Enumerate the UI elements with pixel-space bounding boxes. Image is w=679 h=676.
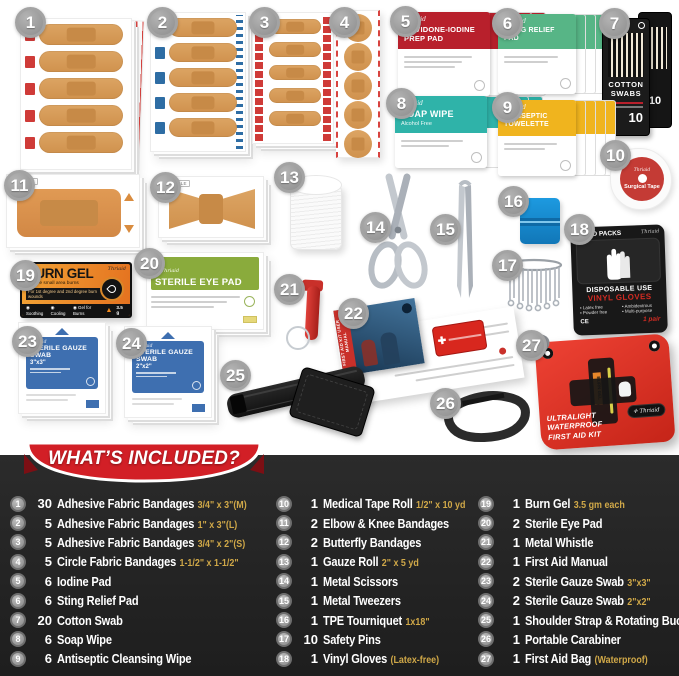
window-horizontal bbox=[569, 376, 637, 407]
item-text: Metal Tweezers bbox=[323, 593, 401, 608]
badge-19: 19 bbox=[10, 260, 41, 291]
item-qty: 6 bbox=[31, 593, 52, 608]
item-name: Iodine Pad bbox=[57, 574, 111, 589]
eye-pad-title: STERILE EYE PAD bbox=[155, 277, 255, 288]
butterfly-pad bbox=[199, 194, 223, 224]
gloves-bullet: ▪ Powder free bbox=[580, 309, 618, 315]
included-item-21: 211Metal Whistle bbox=[478, 533, 679, 552]
item-qty: 6 bbox=[31, 574, 52, 589]
item-number-badge: 19 bbox=[478, 496, 494, 512]
item-name: First Aid Manual bbox=[525, 554, 608, 569]
item-number-badge: 2 bbox=[10, 515, 26, 531]
item-number-badge: 16 bbox=[276, 612, 292, 628]
item-qty: 5 bbox=[31, 535, 52, 550]
item-qty: 1 bbox=[297, 496, 318, 511]
infographic: Thriaid POVIDONE-IODINE PREP PAD Thriaid… bbox=[0, 0, 679, 676]
item-name: Cotton Swab bbox=[57, 613, 123, 628]
item-spec: (Waterproof) bbox=[595, 654, 648, 666]
badge-15: 15 bbox=[430, 214, 461, 245]
item-number-badge: 4 bbox=[10, 554, 26, 570]
badge-13: 13 bbox=[274, 162, 305, 193]
badge-4: 4 bbox=[329, 7, 360, 38]
burn-bullet: ◉ Gel for Burns bbox=[73, 305, 101, 316]
included-item-11: 112Elbow & Knee Bandages bbox=[276, 513, 491, 532]
item-name: Antiseptic Cleansing Wipe bbox=[57, 651, 191, 666]
grommet-icon bbox=[649, 340, 661, 352]
item-number-badge: 10 bbox=[276, 496, 292, 512]
item-text: Metal Scissors bbox=[323, 574, 398, 589]
whats-included-title: WHAT’S INCLUDED? bbox=[18, 448, 270, 470]
item-qty: 30 bbox=[31, 496, 52, 511]
item-number-badge: 23 bbox=[478, 573, 494, 589]
item-qty: 1 bbox=[297, 613, 318, 628]
item-number-badge: 3 bbox=[10, 534, 26, 550]
item-name: Adhesive Fabric Bandages bbox=[57, 516, 194, 531]
item-text: Adhesive Fabric Bandages1" x 3"(L) bbox=[57, 516, 237, 531]
included-item-16: 161TPE Tourniquet1x18" bbox=[276, 610, 491, 629]
red-dot bbox=[499, 347, 507, 355]
item-name: Burn Gel bbox=[525, 496, 570, 511]
item-name: Butterfly Bandages bbox=[323, 535, 421, 550]
included-item-1: 130Adhesive Fabric Bandages3/4" x 3"(M) bbox=[10, 494, 280, 513]
gloves-icon bbox=[589, 241, 648, 281]
included-column-2: 101Medical Tape Roll1/2" x 10 yd112Elbow… bbox=[276, 494, 491, 669]
item-qty: 2 bbox=[297, 516, 318, 531]
item-27-first-aid-bag: BURN GEL ULTRALIGHT WATERPROOF FIRST AID… bbox=[536, 334, 678, 454]
item-name: Circle Fabric Bandages bbox=[57, 554, 176, 569]
included-item-27: 271First Aid Bag(Waterproof) bbox=[478, 649, 679, 668]
item-qty: 6 bbox=[31, 651, 52, 666]
badge-9: 9 bbox=[492, 92, 523, 123]
included-item-23: 232Sterile Gauze Swab3"x3" bbox=[478, 572, 679, 591]
badge-14: 14 bbox=[360, 212, 391, 243]
included-item-9: 96Antiseptic Cleansing Wipe bbox=[10, 649, 280, 668]
badge-8: 8 bbox=[386, 88, 417, 119]
badge-2: 2 bbox=[147, 7, 178, 38]
item-text: Antiseptic Cleansing Wipe bbox=[57, 651, 191, 666]
blue-chip bbox=[86, 400, 99, 408]
item-name: Metal Scissors bbox=[323, 574, 398, 589]
item-text: Circle Fabric Bandages1-1/2" x 1-1/2" bbox=[57, 554, 239, 569]
included-item-6: 66Sting Relief Pad bbox=[10, 591, 280, 610]
item-spec: 2" x 5 yd bbox=[382, 557, 419, 569]
blue-edge bbox=[236, 15, 243, 149]
item-spec: (Latex-free) bbox=[390, 654, 439, 666]
included-item-8: 86Soap Wipe bbox=[10, 630, 280, 649]
burn-bullet: ◉ Cooling bbox=[51, 305, 69, 316]
tape-title: Surgical Tape bbox=[624, 184, 660, 190]
item-spec: 3/4" x 2"(S) bbox=[198, 538, 246, 550]
item-text: Sterile Gauze Swab2"x2" bbox=[525, 593, 651, 608]
item-name: Adhesive Fabric Bandages bbox=[57, 496, 194, 511]
item-number-badge: 17 bbox=[276, 631, 292, 647]
brand-script: Thriaid bbox=[641, 229, 660, 236]
seal-stamp-icon bbox=[474, 80, 485, 91]
glove-in-window bbox=[618, 381, 631, 397]
badge-17: 17 bbox=[492, 250, 523, 281]
item-number-badge: 1 bbox=[10, 496, 26, 512]
item-number-badge: 13 bbox=[276, 554, 292, 570]
item-name: Metal Tweezers bbox=[323, 593, 401, 608]
item-text: Shoulder Strap & Rotating Buckle bbox=[525, 613, 679, 628]
item-name: Vinyl Gloves bbox=[323, 651, 387, 666]
item-text: Elbow & Knee Bandages bbox=[323, 516, 449, 531]
item-qty: 2 bbox=[499, 593, 520, 608]
badge-25: 25 bbox=[220, 360, 251, 391]
item-text: Gauze Roll2" x 5 yd bbox=[323, 554, 419, 569]
badge-22: 22 bbox=[338, 298, 369, 329]
item-number-badge: 15 bbox=[276, 593, 292, 609]
bag-body: BURN GEL ULTRALIGHT WATERPROOF FIRST AID… bbox=[534, 333, 675, 450]
hiker-figure bbox=[380, 331, 401, 365]
item-text: Portable Carabiner bbox=[525, 632, 621, 647]
item-spec: 1-1/2" x 1-1/2" bbox=[179, 557, 238, 569]
seal-icon bbox=[638, 22, 645, 29]
item-qty: 5 bbox=[31, 554, 52, 569]
badge-3: 3 bbox=[249, 7, 280, 38]
ce-mark: CE bbox=[580, 319, 589, 325]
bag-brand-patch: ✛ Thriaid bbox=[627, 403, 666, 419]
droplet-badge-icon bbox=[100, 277, 124, 301]
item-number-badge: 26 bbox=[478, 631, 494, 647]
included-item-18: 181Vinyl Gloves(Latex-free) bbox=[276, 649, 491, 668]
gauze-size: 2"x2" bbox=[136, 364, 200, 370]
badge-1: 1 bbox=[15, 7, 46, 38]
item-number-badge: 24 bbox=[478, 593, 494, 609]
whats-included-panel: WHAT’S INCLUDED? 130Adhesive Fabric Band… bbox=[0, 455, 679, 676]
blue-chip bbox=[192, 404, 205, 412]
item-number-badge: 22 bbox=[478, 554, 494, 570]
item-qty: 2 bbox=[499, 574, 520, 589]
whats-included-ribbon: WHAT’S INCLUDED? bbox=[18, 440, 270, 485]
item-qty: 6 bbox=[31, 632, 52, 647]
item-number-badge: 20 bbox=[478, 515, 494, 531]
item-name: Safety Pins bbox=[323, 632, 381, 647]
item-number-badge: 18 bbox=[276, 651, 292, 667]
kit-photo: ✚ bbox=[432, 319, 488, 357]
tape-hole bbox=[638, 174, 647, 183]
item-qty: 5 bbox=[31, 516, 52, 531]
badge-23: 23 bbox=[12, 326, 43, 357]
red-edge bbox=[323, 15, 331, 141]
item-qty: 1 bbox=[499, 651, 520, 666]
included-item-25: 251Shoulder Strap & Rotating Buckle bbox=[478, 610, 679, 629]
item-name: Elbow & Knee Bandages bbox=[323, 516, 449, 531]
badge-24: 24 bbox=[116, 328, 147, 359]
gloves-line2: VINYL GLOVES bbox=[577, 292, 661, 304]
item-text: Sterile Eye Pad bbox=[525, 516, 602, 531]
burn-bullet: ◉ Soothing bbox=[26, 305, 47, 316]
item-qty: 1 bbox=[297, 554, 318, 569]
flame-icon: ▲ bbox=[105, 307, 112, 314]
bandage bbox=[39, 24, 123, 45]
item-spec: 1" x 3"(L) bbox=[198, 519, 238, 531]
item-15-tweezers bbox=[450, 178, 484, 306]
included-column-1: 130Adhesive Fabric Bandages3/4" x 3"(M)2… bbox=[10, 494, 280, 669]
item-number-badge: 14 bbox=[276, 573, 292, 589]
item-qty: 10 bbox=[297, 632, 318, 647]
badge-20: 20 bbox=[134, 248, 165, 279]
seal-icon bbox=[86, 377, 95, 386]
item-name: Shoulder Strap & Rotating Buckle bbox=[525, 613, 679, 628]
item-text: Safety Pins bbox=[323, 632, 381, 647]
badge-5: 5 bbox=[390, 6, 421, 37]
included-item-24: 242Sterile Gauze Swab2"x2" bbox=[478, 591, 679, 610]
item-name: TPE Tourniquet bbox=[323, 613, 402, 628]
item-number-badge: 7 bbox=[10, 612, 26, 628]
item-name: Gauze Roll bbox=[323, 554, 378, 569]
included-item-7: 720Cotton Swab bbox=[10, 610, 280, 629]
item-text: Butterfly Bandages bbox=[323, 535, 421, 550]
gauze-title: STERILE GAUZE SWAB bbox=[136, 349, 200, 363]
cap-icon bbox=[161, 332, 175, 339]
item-qty: 1 bbox=[499, 613, 520, 628]
badge-11: 11 bbox=[4, 170, 35, 201]
badge-26: 26 bbox=[430, 388, 461, 419]
cotton-title: COTTON SWABS bbox=[603, 80, 649, 99]
included-item-20: 202Sterile Eye Pad bbox=[478, 513, 679, 532]
item-qty: 1 bbox=[499, 554, 520, 569]
item-text: Iodine Pad bbox=[57, 574, 111, 589]
item-text: Burn Gel3.5 gm each bbox=[525, 496, 625, 511]
item-spec: 3"x3" bbox=[627, 577, 650, 589]
badge-6: 6 bbox=[492, 8, 523, 39]
item-number-badge: 5 bbox=[10, 573, 26, 589]
item-name: Portable Carabiner bbox=[525, 632, 621, 647]
item-qty: 1 bbox=[297, 651, 318, 666]
item-text: Adhesive Fabric Bandages3/4" x 2"(S) bbox=[57, 535, 245, 550]
arrow-up-icon bbox=[124, 193, 134, 201]
item-text: Metal Whistle bbox=[525, 535, 593, 550]
included-column-3: 191Burn Gel3.5 gm each202Sterile Eye Pad… bbox=[478, 494, 679, 669]
badge-12: 12 bbox=[150, 172, 181, 203]
badge-7: 7 bbox=[599, 8, 630, 39]
item-qty: 1 bbox=[499, 535, 520, 550]
gauze-size: 3"x3" bbox=[30, 360, 94, 366]
barcode-chip bbox=[243, 316, 257, 323]
item-qty: 1 bbox=[297, 593, 318, 608]
bandage-card bbox=[20, 18, 132, 170]
item-text: Cotton Swab bbox=[57, 613, 123, 628]
badge-16: 16 bbox=[498, 186, 529, 217]
item-name: Sterile Gauze Swab bbox=[525, 574, 624, 589]
item-number-badge: 27 bbox=[478, 651, 494, 667]
item-number-badge: 21 bbox=[478, 534, 494, 550]
included-item-5: 56Iodine Pad bbox=[10, 572, 280, 591]
item-text: Adhesive Fabric Bandages3/4" x 3"(M) bbox=[57, 496, 247, 511]
brand-script: Thriaid bbox=[634, 168, 651, 173]
item-text: Medical Tape Roll1/2" x 10 yd bbox=[323, 496, 465, 511]
included-item-13: 131Gauze Roll2" x 5 yd bbox=[276, 552, 491, 571]
item-number-badge: 11 bbox=[276, 515, 292, 531]
item-number-badge: 12 bbox=[276, 534, 292, 550]
included-item-19: 191Burn Gel3.5 gm each bbox=[478, 494, 679, 513]
arrow-down-icon bbox=[124, 225, 134, 233]
item-text: First Aid Bag(Waterproof) bbox=[525, 651, 648, 666]
badge-21: 21 bbox=[274, 274, 305, 305]
brand-script: Thriaid bbox=[108, 266, 126, 272]
cap-icon bbox=[55, 328, 69, 335]
product-collage: Thriaid POVIDONE-IODINE PREP PAD Thriaid… bbox=[0, 0, 679, 455]
badge-10: 10 bbox=[600, 140, 631, 171]
item-name: Medical Tape Roll bbox=[323, 496, 413, 511]
badge-27: 27 bbox=[516, 330, 547, 361]
gloves-qty: 1 pair bbox=[643, 316, 661, 324]
item-spec: 1/2" x 10 yd bbox=[416, 499, 465, 511]
item-number-badge: 25 bbox=[478, 612, 494, 628]
included-item-3: 35Adhesive Fabric Bandages3/4" x 2"(S) bbox=[10, 533, 280, 552]
soap-subtitle: Alcohol Free bbox=[401, 121, 481, 127]
burn-weight: 3.5 g bbox=[116, 305, 126, 315]
included-item-2: 25Adhesive Fabric Bandages1" x 3"(L) bbox=[10, 513, 280, 532]
item-number-badge: 9 bbox=[10, 651, 26, 667]
included-item-22: 221First Aid Manual bbox=[478, 552, 679, 571]
included-item-10: 101Medical Tape Roll1/2" x 10 yd bbox=[276, 494, 491, 513]
item-spec: 1x18" bbox=[405, 616, 429, 628]
item-text: First Aid Manual bbox=[525, 554, 608, 569]
item-text: Vinyl Gloves(Latex-free) bbox=[323, 651, 439, 666]
item-spec: 3.5 gm each bbox=[574, 499, 625, 511]
item-number-badge: 6 bbox=[10, 593, 26, 609]
item-spec: 2"x2" bbox=[627, 596, 650, 608]
item-name: Sterile Gauze Swab bbox=[525, 593, 624, 608]
large-pad bbox=[17, 189, 121, 237]
seal-icon bbox=[192, 381, 201, 390]
item-qty: 2 bbox=[297, 535, 318, 550]
gloves-window bbox=[576, 238, 661, 285]
item-name: First Aid Bag bbox=[525, 651, 591, 666]
item-text: Sterile Gauze Swab3"x3" bbox=[525, 574, 651, 589]
badge-18: 18 bbox=[564, 214, 595, 245]
item-name: Sterile Eye Pad bbox=[525, 516, 602, 531]
item-name: Metal Whistle bbox=[525, 535, 593, 550]
item-name: Adhesive Fabric Bandages bbox=[57, 535, 194, 550]
included-item-17: 1710Safety Pins bbox=[276, 630, 491, 649]
included-item-15: 151Metal Tweezers bbox=[276, 591, 491, 610]
gloves-bullet: ▪ Multi-purpose bbox=[622, 308, 660, 314]
included-item-14: 141Metal Scissors bbox=[276, 572, 491, 591]
item-number-badge: 8 bbox=[10, 631, 26, 647]
item-qty: 1 bbox=[499, 632, 520, 647]
item-text: Sting Relief Pad bbox=[57, 593, 138, 608]
item-qty: 1 bbox=[297, 574, 318, 589]
item-qty: 1 bbox=[499, 496, 520, 511]
item-qty: 20 bbox=[31, 613, 52, 628]
included-item-26: 261Portable Carabiner bbox=[478, 630, 679, 649]
keyring-icon bbox=[286, 326, 310, 350]
item-text: TPE Tourniquet1x18" bbox=[323, 613, 430, 628]
item-text: Soap Wipe bbox=[57, 632, 112, 647]
logo-dot bbox=[401, 303, 412, 314]
item-name: Sting Relief Pad bbox=[57, 593, 138, 608]
item-qty: 2 bbox=[499, 516, 520, 531]
included-item-4: 45Circle Fabric Bandages1-1/2" x 1-1/2" bbox=[10, 552, 280, 571]
item-spec: 3/4" x 3"(M) bbox=[198, 499, 247, 511]
included-item-12: 122Butterfly Bandages bbox=[276, 533, 491, 552]
item-name: Soap Wipe bbox=[57, 632, 112, 647]
